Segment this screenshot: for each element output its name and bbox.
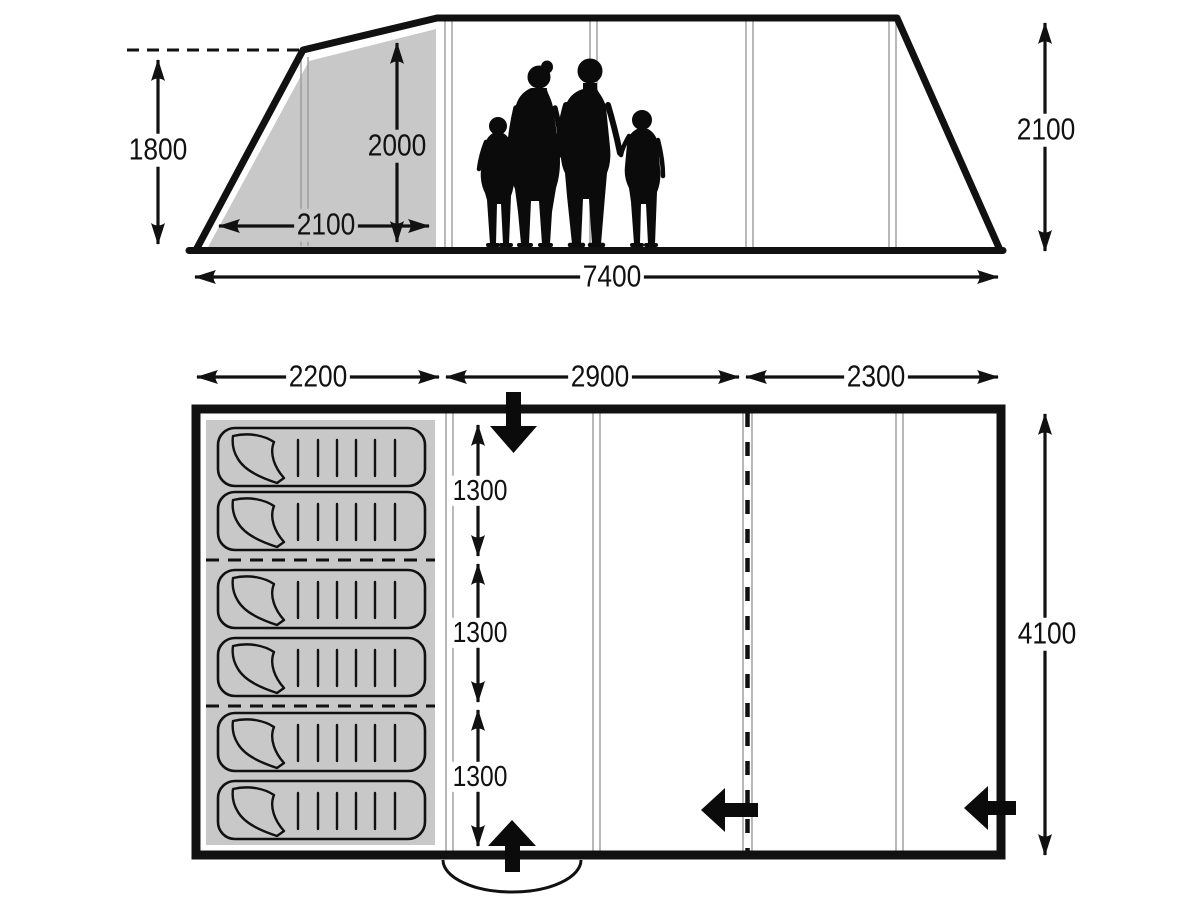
floor-plan-drawing xyxy=(196,377,1045,892)
dim-label-bedroom-width: 2100 xyxy=(294,209,358,242)
sleeping-bag-3 xyxy=(218,570,425,628)
dim-label-section-width-2: 2900 xyxy=(568,361,632,394)
top-door-arrow xyxy=(490,392,537,453)
sleeping-bag-4 xyxy=(218,638,425,696)
dim-label-total-length: 7400 xyxy=(580,261,644,294)
dim-label-right-wall-height: 2100 xyxy=(1014,114,1078,147)
dim-label-section-width-3: 2300 xyxy=(844,361,908,394)
sleeping-bag-6 xyxy=(218,781,425,839)
dim-label-section-width-1: 2200 xyxy=(286,361,350,394)
pole-lines-plan xyxy=(446,413,903,852)
tent-dimensions-diagram: 1800 2000 2100 7400 2100 2200 2900 2300 … xyxy=(0,0,1200,900)
sleeping-bag-5 xyxy=(218,713,425,771)
sleeping-bag-1 xyxy=(218,428,425,486)
dim-label-bedroom-height: 2000 xyxy=(365,130,429,163)
dim-label-left-wall-height: 1800 xyxy=(126,134,190,167)
dim-label-bed-depth-1: 1300 xyxy=(450,476,510,506)
side-elevation-drawing xyxy=(127,18,1045,277)
dim-label-bed-depth-2: 1300 xyxy=(450,618,510,648)
dim-label-total-width: 4100 xyxy=(1015,618,1079,651)
bottom-door-arrow xyxy=(488,820,536,872)
dim-label-bed-depth-3: 1300 xyxy=(450,762,510,792)
family-silhouette xyxy=(479,59,663,245)
right-door-arrow xyxy=(964,786,1016,830)
sleeping-bag-2 xyxy=(218,492,425,550)
